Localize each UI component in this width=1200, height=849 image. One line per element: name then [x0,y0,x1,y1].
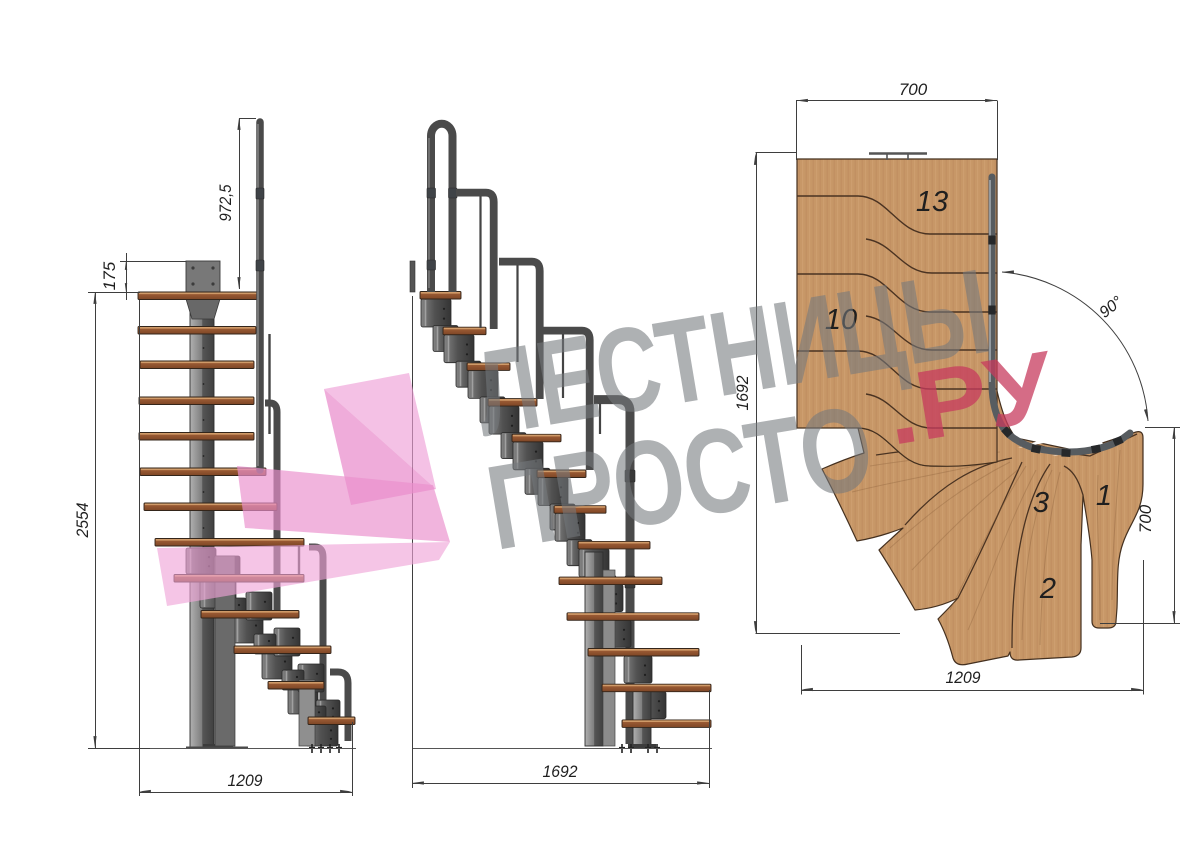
svg-text:1: 1 [1096,480,1112,512]
svg-text:13: 13 [916,186,948,218]
svg-text:700: 700 [1136,504,1155,533]
svg-text:175: 175 [100,261,119,290]
svg-text:2: 2 [1039,573,1056,605]
svg-text:972,5: 972,5 [216,184,235,221]
svg-text:2554: 2554 [73,503,92,539]
svg-text:1209: 1209 [946,668,981,687]
svg-text:3: 3 [1033,487,1049,519]
svg-text:700: 700 [899,80,928,99]
svg-text:1209: 1209 [228,771,263,790]
svg-text:1692: 1692 [543,762,578,781]
